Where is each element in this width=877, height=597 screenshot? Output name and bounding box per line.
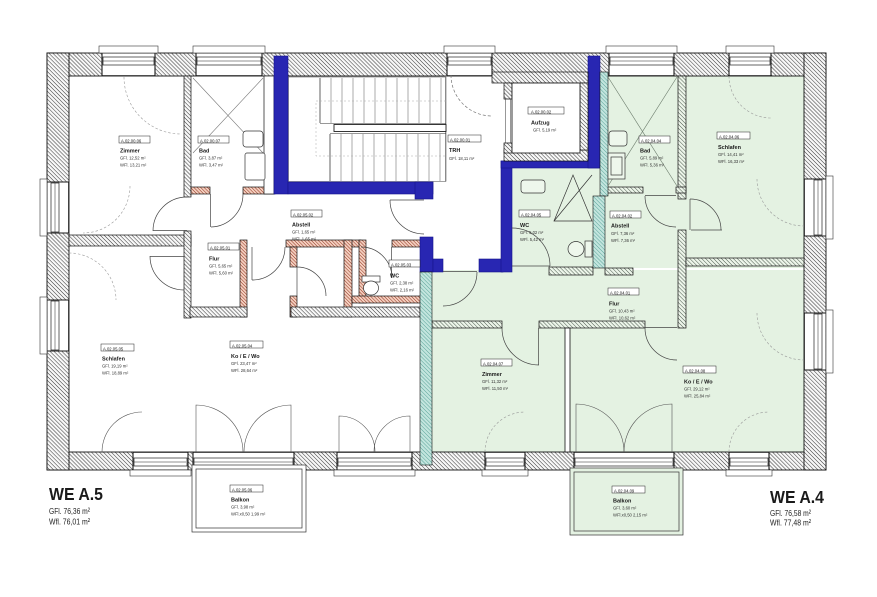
svg-text:TRH: TRH (449, 148, 460, 154)
svg-text:WFl. 28,64 m²: WFl. 28,64 m² (231, 368, 258, 373)
svg-text:Ko / E / Wo: Ko / E / Wo (684, 380, 713, 386)
svg-text:WFl. 5,36 m²: WFl. 5,36 m² (640, 163, 665, 168)
svg-text:Balkon: Balkon (613, 499, 632, 505)
svg-text:WFl. 7,36 m²: WFl. 7,36 m² (611, 238, 636, 243)
svg-text:GFl. 14,41 m²: GFl. 14,41 m² (718, 152, 744, 157)
svg-text:A.02.04.07: A.02.04.07 (483, 361, 504, 366)
svg-text:Ko / E / Wo: Ko / E / Wo (231, 354, 260, 360)
svg-text:A.02.05.06: A.02.05.06 (232, 487, 253, 492)
svg-text:Zimmer: Zimmer (120, 149, 141, 155)
svg-text:A.02.04.06: A.02.04.06 (719, 134, 740, 139)
svg-text:Schlafen: Schlafen (718, 145, 742, 151)
svg-text:GFl. 29,12 m²: GFl. 29,12 m² (684, 387, 710, 392)
svg-text:WFl. 18,89 m²: WFl. 18,89 m² (102, 371, 129, 376)
svg-text:WFl. 11,50 m²: WFl. 11,50 m² (482, 386, 509, 391)
svg-text:WE A.4: WE A.4 (770, 487, 824, 507)
svg-text:WFl. 13,21 m²: WFl. 13,21 m² (120, 163, 147, 168)
svg-text:Wfl. 77,48 m²: Wfl. 77,48 m² (770, 518, 811, 528)
svg-text:GFl. 23,47 m²: GFl. 23,47 m² (231, 361, 257, 366)
svg-text:Bad: Bad (640, 149, 650, 155)
svg-text:WFl.x0,50 2,15 m²: WFl.x0,50 2,15 m² (613, 513, 648, 518)
svg-text:GFl. 18,11 m²: GFl. 18,11 m² (449, 156, 475, 161)
svg-text:Bad: Bad (199, 149, 209, 155)
svg-text:A.02.04.05: A.02.04.05 (521, 212, 542, 217)
svg-text:WFl. 3,47 m²: WFl. 3,47 m² (199, 163, 224, 168)
svg-text:Abstell: Abstell (292, 223, 311, 229)
svg-text:A.02.05.02: A.02.05.02 (293, 212, 314, 217)
svg-text:A.02.00.02: A.02.00.02 (531, 109, 552, 114)
svg-text:GFl. 76,58 m²: GFl. 76,58 m² (770, 508, 811, 518)
svg-text:GFl. 1,65 m²: GFl. 1,65 m² (292, 230, 316, 235)
svg-text:A.02.05.03: A.02.05.03 (391, 262, 412, 267)
svg-text:A.02.00.06: A.02.00.06 (121, 138, 142, 143)
svg-text:GFl. 19,19 m²: GFl. 19,19 m² (102, 364, 128, 369)
svg-text:GFl. 5,89 m²: GFl. 5,89 m² (640, 156, 664, 161)
svg-text:WFl. 16,33 m²: WFl. 16,33 m² (718, 159, 745, 164)
svg-text:Flur: Flur (209, 257, 220, 263)
svg-text:Flur: Flur (609, 302, 620, 308)
svg-text:A.02.04.02: A.02.04.02 (612, 213, 633, 218)
svg-text:GFl. 2,38 m²: GFl. 2,38 m² (390, 281, 414, 286)
svg-text:WFl. 1,65 m²: WFl. 1,65 m² (292, 237, 317, 242)
svg-text:WFl. 10,62 m²: WFl. 10,62 m² (609, 316, 636, 321)
svg-text:GFl. 11,32 m²: GFl. 11,32 m² (482, 379, 508, 384)
svg-text:Schlafen: Schlafen (102, 357, 126, 363)
svg-text:A.02.05.05: A.02.05.05 (103, 346, 124, 351)
svg-text:WFl. 25,84 m²: WFl. 25,84 m² (684, 394, 711, 399)
svg-text:WFl. 5,60 m²: WFl. 5,60 m² (209, 271, 234, 276)
svg-text:GFl. 5,65 m²: GFl. 5,65 m² (209, 264, 233, 269)
svg-text:GFl. 7,36 m²: GFl. 7,36 m² (611, 231, 635, 236)
svg-text:A.02.04.08: A.02.04.08 (685, 368, 706, 373)
svg-text:A.02.04.04: A.02.04.04 (641, 138, 662, 143)
svg-text:A.02.00.01: A.02.00.01 (450, 137, 471, 142)
svg-text:GFl. 10,43 m²: GFl. 10,43 m² (609, 309, 635, 314)
svg-text:A.02.05.01: A.02.05.01 (210, 245, 231, 250)
svg-text:Wfl. 76,01 m²: Wfl. 76,01 m² (49, 517, 90, 527)
svg-text:A.02.04.09: A.02.04.09 (614, 488, 635, 493)
svg-text:WC: WC (390, 274, 399, 280)
svg-text:A.02.00.07: A.02.00.07 (200, 138, 221, 143)
svg-text:GFl. 3,60 m²: GFl. 3,60 m² (613, 506, 637, 511)
svg-text:Aufzug: Aufzug (531, 121, 550, 127)
svg-text:GFl. 5,02 m²: GFl. 5,02 m² (520, 230, 544, 235)
svg-text:GFl. 3,87 m²: GFl. 3,87 m² (199, 156, 223, 161)
svg-text:WFl.x0,50 1,99 m²: WFl.x0,50 1,99 m² (231, 512, 266, 517)
svg-text:GFl. 12,52 m²: GFl. 12,52 m² (120, 156, 146, 161)
svg-text:Balkon: Balkon (231, 498, 250, 504)
svg-text:GFl. 76,36 m²: GFl. 76,36 m² (49, 506, 90, 516)
svg-text:Zimmer: Zimmer (482, 372, 503, 378)
svg-text:WE A.5: WE A.5 (49, 484, 103, 504)
svg-text:WFl. 2,16 m²: WFl. 2,16 m² (390, 288, 415, 293)
svg-text:GFl. 5,19 m²: GFl. 5,19 m² (533, 128, 557, 133)
svg-text:A.02.04.01: A.02.04.01 (610, 290, 631, 295)
svg-text:GFl. 3,98 m²: GFl. 3,98 m² (231, 505, 255, 510)
svg-text:WC: WC (520, 223, 529, 229)
svg-text:Abstell: Abstell (611, 224, 630, 230)
svg-text:A.02.05.04: A.02.05.04 (232, 343, 253, 348)
svg-text:WFl. 5,42 m²: WFl. 5,42 m² (520, 237, 545, 242)
